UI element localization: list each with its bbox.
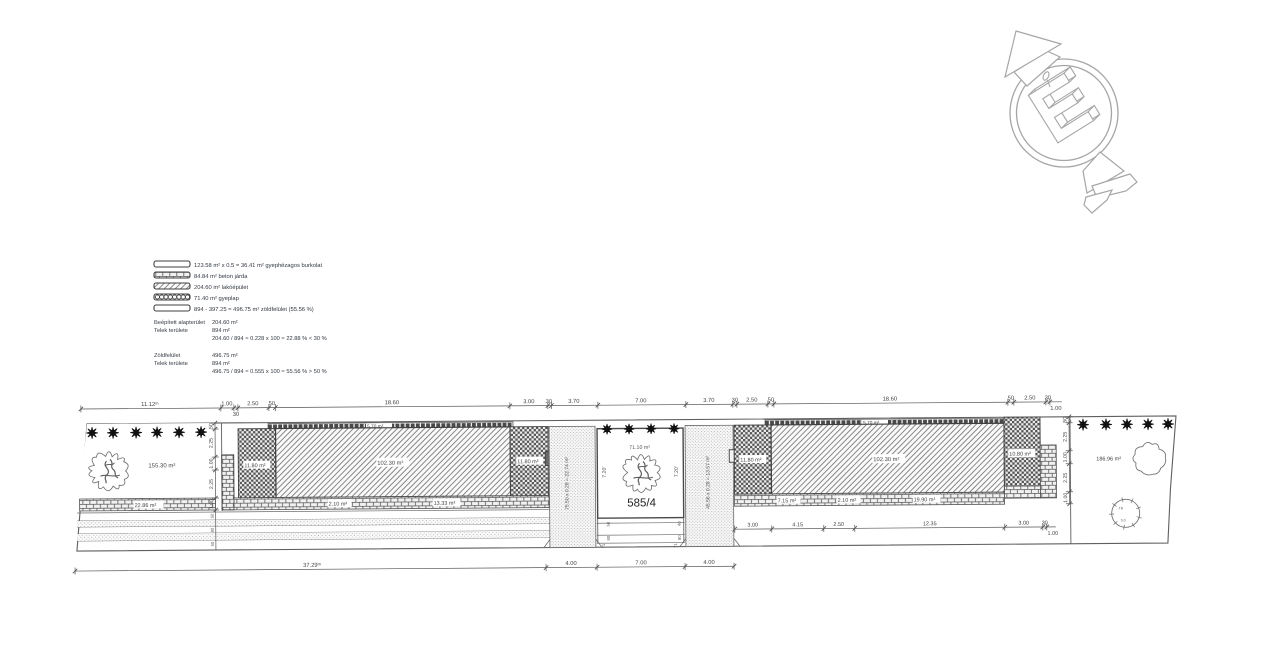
svg-text:2.50: 2.50 xyxy=(247,400,258,407)
svg-text:2.10 m²: 2.10 m² xyxy=(329,502,348,508)
svg-text:10.80 m²: 10.80 m² xyxy=(1009,452,1031,458)
svg-text:204.60 / 894 = 0.228 x 100 = 2: 204.60 / 894 = 0.228 x 100 = 22.88 % < 3… xyxy=(212,335,327,342)
svg-text:80: 80 xyxy=(210,527,215,532)
svg-text:80: 80 xyxy=(606,535,611,540)
svg-text:496.75 / 894 = 0.555 x 100 = 5: 496.75 / 894 = 0.555 x 100 = 55.56 % > 5… xyxy=(212,368,327,375)
svg-text:102.30 m²: 102.30 m² xyxy=(873,456,899,463)
svg-text:1.00: 1.00 xyxy=(1047,531,1058,537)
svg-text:71: 71 xyxy=(601,543,606,548)
svg-text:186.96 m²: 186.96 m² xyxy=(1096,456,1121,462)
svg-text:37.29ᵐ: 37.29ᵐ xyxy=(303,562,322,569)
svg-text:30: 30 xyxy=(1042,520,1048,526)
svg-text:71: 71 xyxy=(673,543,678,548)
svg-text:50: 50 xyxy=(208,423,214,429)
svg-text:11.12ᵐ: 11.12ᵐ xyxy=(141,401,159,408)
svg-text:1.00: 1.00 xyxy=(1063,493,1069,503)
svg-text:894 - 397.25 = 496.75 m² zöldf: 894 - 397.25 = 496.75 m² zöldfelület (55… xyxy=(194,306,314,313)
svg-text:50: 50 xyxy=(210,513,215,518)
svg-text:894 m²: 894 m² xyxy=(212,361,230,367)
svg-text:2.50: 2.50 xyxy=(746,397,757,404)
svg-text:30: 30 xyxy=(233,411,240,418)
svg-text:2.25: 2.25 xyxy=(209,438,215,448)
svg-text:50: 50 xyxy=(1008,395,1015,402)
svg-text:50: 50 xyxy=(210,541,215,546)
svg-text:Telek területe: Telek területe xyxy=(154,360,188,367)
svg-text:894 m²: 894 m² xyxy=(212,328,230,334)
svg-text:1.00: 1.00 xyxy=(221,400,232,407)
svg-text:13.33 m²: 13.33 m² xyxy=(434,501,456,507)
svg-text:TB: TB xyxy=(1119,506,1124,510)
svg-text:7.00: 7.00 xyxy=(635,397,646,404)
svg-text:4.00: 4.00 xyxy=(565,560,576,567)
svg-text:1.00: 1.00 xyxy=(209,458,215,468)
svg-text:2.10 m²: 2.10 m² xyxy=(838,498,857,504)
svg-text:3.70: 3.70 xyxy=(703,397,714,404)
svg-text:18.60: 18.60 xyxy=(883,396,898,403)
svg-text:11.80 m²: 11.80 m² xyxy=(244,463,266,469)
svg-text:123.58 m² x 0.5 = 36.41 m² gye: 123.58 m² x 0.5 = 36.41 m² gyephézagos b… xyxy=(194,262,322,269)
svg-text:11.80 m²: 11.80 m² xyxy=(740,458,762,464)
svg-text:71.40 m² gyeplap: 71.40 m² gyeplap xyxy=(194,295,239,302)
svg-text:11.80 m²: 11.80 m² xyxy=(517,459,539,465)
svg-text:155.30 m²: 155.30 m² xyxy=(148,462,175,469)
svg-text:2.25: 2.25 xyxy=(1063,432,1069,442)
svg-text:18.60: 18.60 xyxy=(385,399,400,406)
svg-text:2.50: 2.50 xyxy=(1024,395,1035,402)
svg-text:Beépített alapterület: Beépített alapterület xyxy=(154,319,205,326)
svg-text:3.00: 3.00 xyxy=(523,398,534,405)
svg-text:12.35: 12.35 xyxy=(923,521,937,527)
svg-text:2.25: 2.25 xyxy=(209,479,215,489)
svg-text:75.50 x 0.28 = 22.74 m²: 75.50 x 0.28 = 22.74 m² xyxy=(564,457,570,510)
svg-text:30: 30 xyxy=(546,398,553,405)
svg-text:2.50: 2.50 xyxy=(833,522,844,528)
svg-text:2.25: 2.25 xyxy=(1063,473,1069,483)
svg-text:50: 50 xyxy=(269,400,276,407)
svg-text:7.20′: 7.20′ xyxy=(602,467,608,478)
svg-text:7.20′: 7.20′ xyxy=(674,466,680,477)
svg-text:7.00: 7.00 xyxy=(635,559,646,566)
svg-text:30: 30 xyxy=(1045,394,1052,401)
svg-text:50: 50 xyxy=(768,396,775,403)
svg-text:5.0: 5.0 xyxy=(1121,518,1126,522)
svg-text:1.00: 1.00 xyxy=(209,499,215,509)
svg-text:496.75 m²: 496.75 m² xyxy=(212,353,238,359)
svg-text:40: 40 xyxy=(677,521,682,526)
svg-text:30: 30 xyxy=(732,397,739,404)
svg-text:71.10 m²: 71.10 m² xyxy=(629,445,650,451)
svg-text:204.60 m² lakóépület: 204.60 m² lakóépület xyxy=(194,284,249,291)
svg-text:3.70: 3.70 xyxy=(568,398,579,405)
svg-text:204.60 m²: 204.60 m² xyxy=(212,320,238,326)
svg-text:7.15 m²: 7.15 m² xyxy=(778,498,797,504)
svg-text:80: 80 xyxy=(677,535,682,540)
svg-text:1.00: 1.00 xyxy=(1063,452,1069,462)
svg-text:3.00: 3.00 xyxy=(1018,521,1029,527)
svg-text:4.00: 4.00 xyxy=(703,559,714,566)
svg-text:19.90 m²: 19.90 m² xyxy=(914,497,936,503)
svg-text:50: 50 xyxy=(606,521,611,526)
svg-text:3.00: 3.00 xyxy=(747,523,758,529)
svg-text:45.56 x 0.28 = 13.57 m²: 45.56 x 0.28 = 13.57 m² xyxy=(705,456,711,509)
svg-text:102.30 m²: 102.30 m² xyxy=(377,460,403,467)
svg-text:585/4: 585/4 xyxy=(627,497,656,509)
svg-text:22.86 m²: 22.86 m² xyxy=(135,503,157,509)
svg-text:Zöldfelület: Zöldfelület xyxy=(154,352,181,359)
svg-text:4.15: 4.15 xyxy=(792,522,803,528)
svg-text:84.84 m² beton járda: 84.84 m² beton járda xyxy=(194,273,248,280)
svg-text:50: 50 xyxy=(1062,417,1068,423)
svg-text:1.00: 1.00 xyxy=(1050,405,1061,412)
svg-text:Telek területe: Telek területe xyxy=(154,327,188,334)
